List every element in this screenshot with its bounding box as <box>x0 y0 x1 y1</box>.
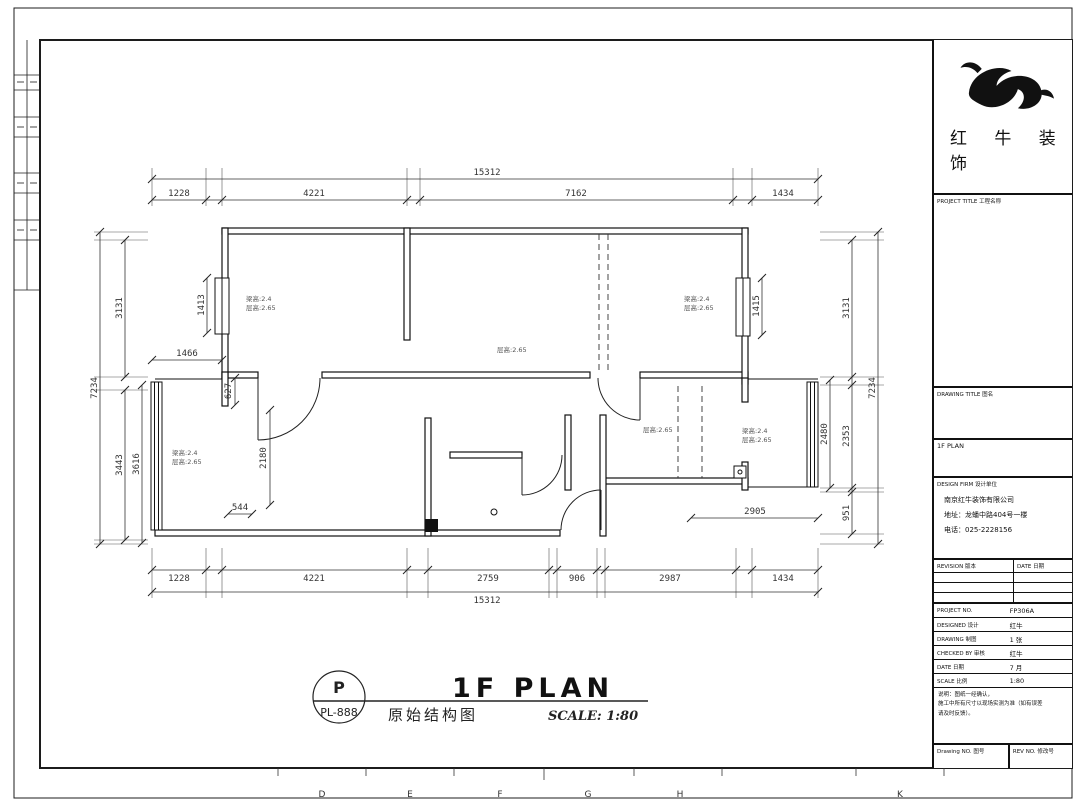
drawing-sheet: { "page": { "ruler_letters": ["D","E","F… <box>0 0 1080 810</box>
info-value: 1:80 <box>1010 677 1025 685</box>
ruler-letter-g: G <box>585 790 592 800</box>
label-room-tl-1: 梁高:2.4 <box>246 294 272 303</box>
revision-row <box>934 573 1072 583</box>
dim-window-left: 1413 <box>197 294 207 316</box>
brand-line-2: 饰 <box>934 149 1072 174</box>
dim-top-1: 1228 <box>168 189 190 199</box>
revision-date-label: DATE 日期 <box>1014 560 1047 572</box>
rev-no-label: REV NO. 修改号 <box>1010 745 1057 768</box>
dim-top-3: 7162 <box>565 189 587 199</box>
company-phone: 电话：025-2228156 <box>934 525 1072 535</box>
revision-row <box>934 593 1072 602</box>
dim-left-upper: 3131 <box>115 297 125 319</box>
label-room-ll-1: 梁高:2.4 <box>172 448 198 457</box>
footer-section: Drawing NO. 图号 REV NO. 修改号 <box>934 745 1072 768</box>
walls <box>155 228 748 536</box>
design-firm-label: DESIGN FIRM 设计单位 <box>934 478 1072 490</box>
note-line: 说明：图纸一经确认， <box>938 691 1068 700</box>
title-bubble-letter: P <box>333 678 345 697</box>
info-label: SCALE 比例 <box>937 677 1010 685</box>
dim-balcony-left: 1466 <box>176 349 198 359</box>
info-row-designed: DESIGNED 设计 红牛 <box>934 618 1072 632</box>
project-title-section: PROJECT TITLE 工程名称 <box>934 195 1072 388</box>
info-label: DRAWING 制图 <box>937 635 1010 643</box>
window-balcony-right <box>807 382 818 487</box>
columns <box>425 466 746 532</box>
doors <box>258 378 640 530</box>
info-value: FP306A <box>1010 607 1035 615</box>
info-row-project-no: PROJECT NO. FP306A <box>934 604 1072 618</box>
title-block: 红 牛 装 饰 PROJECT TITLE 工程名称 DRAWING TITLE… <box>932 40 1072 768</box>
windows <box>151 278 818 530</box>
plan-scale: SCALE: 1:80 <box>548 709 638 724</box>
dim-top-2: 4221 <box>303 189 325 199</box>
door-lower-left <box>258 378 320 440</box>
dim-bot-3: 2759 <box>477 574 499 584</box>
drawing-name-section: 1F PLAN <box>934 440 1072 478</box>
info-value: 红牛 <box>1010 620 1023 630</box>
dim-bot-2: 4221 <box>303 574 325 584</box>
ruler-letter-d: D <box>319 790 326 800</box>
notes-section: 说明：图纸一经确认， 施工中所有尺寸以现场实测为准（如有误差 请及时反馈）。 <box>934 688 1072 745</box>
binding-strip <box>14 40 40 290</box>
drawing-title-section: DRAWING TITLE 图名 <box>934 388 1072 440</box>
dim-left-lower-a: 3443 <box>115 454 125 476</box>
dim-window-right: 1415 <box>752 295 762 317</box>
dim-door-ll: 544 <box>232 503 248 513</box>
plan-title-cn: 原始结构图 <box>388 706 478 724</box>
label-hall: 层高:2.65 <box>497 345 527 354</box>
logo-section: 红 牛 装 饰 <box>934 40 1072 195</box>
label-room-tr-2: 层高:2.65 <box>684 303 714 312</box>
label-room-tl-2: 层高:2.65 <box>246 303 276 312</box>
dim-left-total: 7234 <box>90 377 100 399</box>
floor-drain-icon <box>491 509 497 515</box>
ruler-letter-e: E <box>407 790 413 800</box>
column-solid <box>425 519 438 532</box>
label-room-ll-2: 层高:2.65 <box>172 457 202 466</box>
dim-right-width: 2905 <box>744 507 766 517</box>
dim-right-mid: 2353 <box>842 425 852 447</box>
design-firm-section: DESIGN FIRM 设计单位 南京红牛装饰有限公司 地址：龙蟠中路404号一… <box>934 478 1072 560</box>
label-right-mid: 层高:2.65 <box>643 425 673 434</box>
dim-stub: 627 <box>224 383 234 399</box>
info-value: 1 张 <box>1010 634 1023 644</box>
bottom-ruler: D E F G H K <box>278 768 944 800</box>
revision-row <box>934 583 1072 593</box>
company-address: 地址：龙蟠中路404号一楼 <box>934 510 1072 520</box>
dim-bot-6: 1434 <box>772 574 794 584</box>
dim-bot-4: 906 <box>569 574 585 584</box>
revision-table: REVISION 版本 DATE 日期 <box>934 560 1072 604</box>
info-row-drawing: DRAWING 制图 1 张 <box>934 632 1072 646</box>
plan-title: 1F PLAN <box>452 673 614 704</box>
label-room-tr-1: 梁高:2.4 <box>684 294 710 303</box>
info-row-date: DATE 日期 7 月 <box>934 660 1072 674</box>
info-label: PROJECT NO. <box>937 608 1010 614</box>
beam-dashed-lines <box>599 234 702 478</box>
column-hollow <box>734 466 746 478</box>
dim-top-total: 15312 <box>473 168 500 178</box>
dim-bot-5: 2987 <box>659 574 681 584</box>
title-bubble-code: PL-888 <box>320 706 358 719</box>
brand-line-1: 红 牛 装 <box>934 124 1072 149</box>
revision-label: REVISION 版本 <box>934 560 1014 572</box>
dim-right-total: 7234 <box>868 377 878 399</box>
ruler-letter-f: F <box>497 790 502 800</box>
company-name: 南京红牛装饰有限公司 <box>934 495 1072 505</box>
dim-right-inner: 2480 <box>820 423 830 445</box>
door-top-right-room <box>598 378 640 420</box>
info-row-checked: CHECKED BY 审核 红牛 <box>934 646 1072 660</box>
dim-right-lower: 951 <box>842 505 852 521</box>
note-line: 请及时反馈）。 <box>938 710 1068 719</box>
info-value: 红牛 <box>1010 648 1023 658</box>
dim-bottom-total: 15312 <box>473 596 500 606</box>
dim-room-ll-height: 2180 <box>259 447 269 469</box>
door-entry <box>561 490 601 530</box>
project-title-label: PROJECT TITLE 工程名称 <box>934 195 1072 207</box>
dim-left-lower-b: 3616 <box>132 453 142 475</box>
info-label: DESIGNED 设计 <box>937 621 1010 629</box>
label-room-rl-2: 层高:2.65 <box>742 435 772 444</box>
bull-logo-icon <box>948 54 1058 122</box>
dim-top-4: 1434 <box>772 189 794 199</box>
info-label: CHECKED BY 审核 <box>937 649 1010 657</box>
dim-bot-1: 1228 <box>168 574 190 584</box>
floor-plan-canvas: 15312 1228 4221 7162 1434 1228 4221 2759… <box>0 0 1080 810</box>
info-label: DATE 日期 <box>937 663 1010 671</box>
drawing-name: 1F PLAN <box>934 440 1072 452</box>
drawing-no-label: Drawing NO. 图号 <box>934 745 1010 768</box>
info-row-scale: SCALE 比例 1:80 <box>934 674 1072 688</box>
door-bath <box>522 455 562 495</box>
drawing-title-group: P PL-888 1F PLAN 原始结构图 SCALE: 1:80 <box>313 671 648 724</box>
window-top-right <box>736 278 750 336</box>
label-room-rl-1: 梁高:2.4 <box>742 426 768 435</box>
dim-right-upper: 3131 <box>842 297 852 319</box>
drawing-title-label: DRAWING TITLE 图名 <box>934 388 1072 400</box>
note-line: 施工中所有尺寸以现场实测为准（如有误差 <box>938 700 1068 709</box>
window-balcony-left <box>151 382 162 530</box>
window-top-left <box>215 278 229 334</box>
balcony-edges <box>155 379 818 487</box>
info-value: 7 月 <box>1010 662 1023 672</box>
ruler-letter-h: H <box>677 790 684 800</box>
